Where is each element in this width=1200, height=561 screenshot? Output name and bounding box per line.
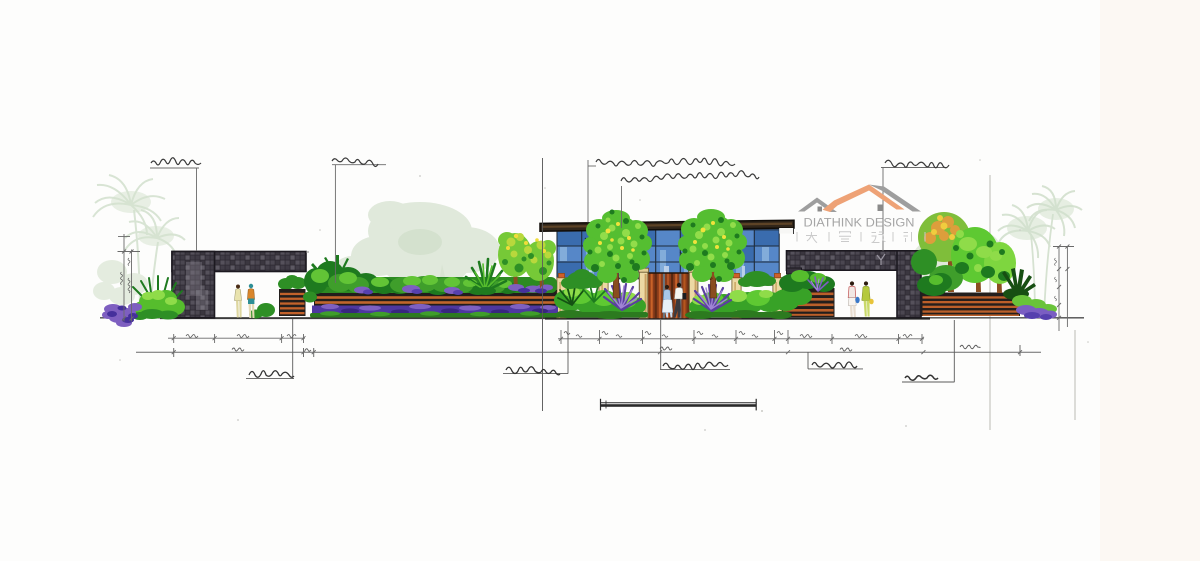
svg-text:DIATHINK DESIGN: DIATHINK DESIGN bbox=[804, 218, 915, 230]
